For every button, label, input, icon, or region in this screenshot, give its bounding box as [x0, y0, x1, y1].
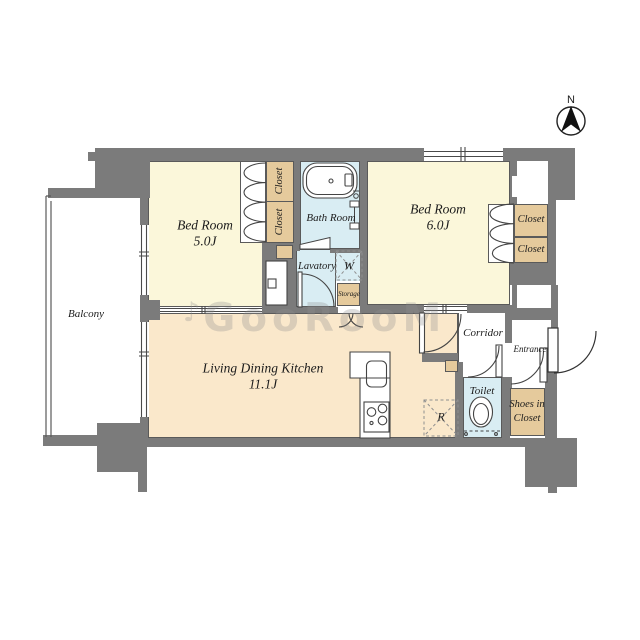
wall-segment [510, 263, 556, 285]
wall-segment [467, 305, 512, 313]
ldk-label: Living Dining Kitchen [203, 362, 324, 377]
wall-segment [551, 285, 558, 330]
storage-label: Storage [338, 291, 360, 299]
wall-segment [148, 148, 424, 161]
bedroom1-closet-door-area [240, 161, 266, 243]
wall-segment [138, 472, 147, 492]
wall-segment [330, 249, 360, 253]
shoes-closet-label-line2: Closet [514, 413, 541, 425]
pipe-space [445, 360, 458, 372]
entry-door [548, 328, 596, 373]
entrance-alcove [517, 285, 551, 308]
bedroom1-closet-lower-label: Closet [274, 209, 286, 236]
bedroom1-closet-upper-label: Closet [274, 168, 286, 195]
wall-niche [512, 176, 530, 197]
balcony-railing [46, 196, 51, 437]
wall-segment [548, 200, 556, 263]
bedroom1-size: 5.0J [194, 235, 217, 250]
wall-segment [455, 362, 463, 440]
bedroom2-closet-lower-label: Closet [518, 244, 545, 256]
bathroom-floor [300, 161, 360, 249]
bedroom2-label: Bed Room [410, 203, 466, 218]
washing-machine-label: W [344, 259, 354, 272]
wall-segment [262, 307, 338, 313]
corridor-label: Corridor [463, 327, 503, 339]
lavatory-label: Lavatory [298, 261, 336, 273]
refrigerator-label: R [437, 410, 444, 423]
bedroom2-closet-upper-label: Closet [518, 214, 545, 226]
entrance-label: Entrance [514, 345, 547, 355]
wall-segment [548, 487, 557, 493]
bedroom2-sliding-door [424, 304, 467, 313]
wall-segment [505, 313, 512, 343]
wall-segment [294, 159, 300, 251]
bathroom-label: Bath Room [306, 212, 355, 224]
wall-segment [548, 161, 575, 200]
bedroom2-size: 6.0J [427, 219, 450, 234]
small-cabinet [276, 245, 293, 259]
wall-segment [360, 148, 367, 313]
lavatory-floor [296, 249, 336, 307]
bedroom2-closet-door-area [488, 204, 514, 263]
shoes-in-closet-box [510, 388, 545, 436]
ldk-size: 11.1J [249, 378, 278, 393]
wall-segment [43, 435, 97, 446]
floor-plan: ♪ GooRooM N Balcony Bed Room 5.0J Bed Ro… [0, 0, 640, 640]
toilet-label: Toilet [470, 385, 495, 397]
corridor-floor [458, 313, 505, 377]
compass-north-label: N [567, 94, 575, 106]
shoes-closet-label-line1: Shoes in [509, 399, 544, 411]
wall-segment [360, 305, 424, 313]
bedroom2-window [424, 147, 503, 161]
wall-segment [133, 438, 545, 447]
wall-segment [48, 188, 95, 198]
balcony-label: Balcony [68, 308, 104, 320]
wall-segment [140, 161, 148, 225]
north-compass-icon [557, 106, 585, 135]
wall-segment [88, 152, 95, 161]
wall-segment [140, 300, 160, 320]
wall-segment [525, 438, 577, 487]
wall-segment [97, 423, 147, 472]
bedroom1-label: Bed Room [177, 219, 233, 234]
wall-segment [512, 308, 551, 320]
